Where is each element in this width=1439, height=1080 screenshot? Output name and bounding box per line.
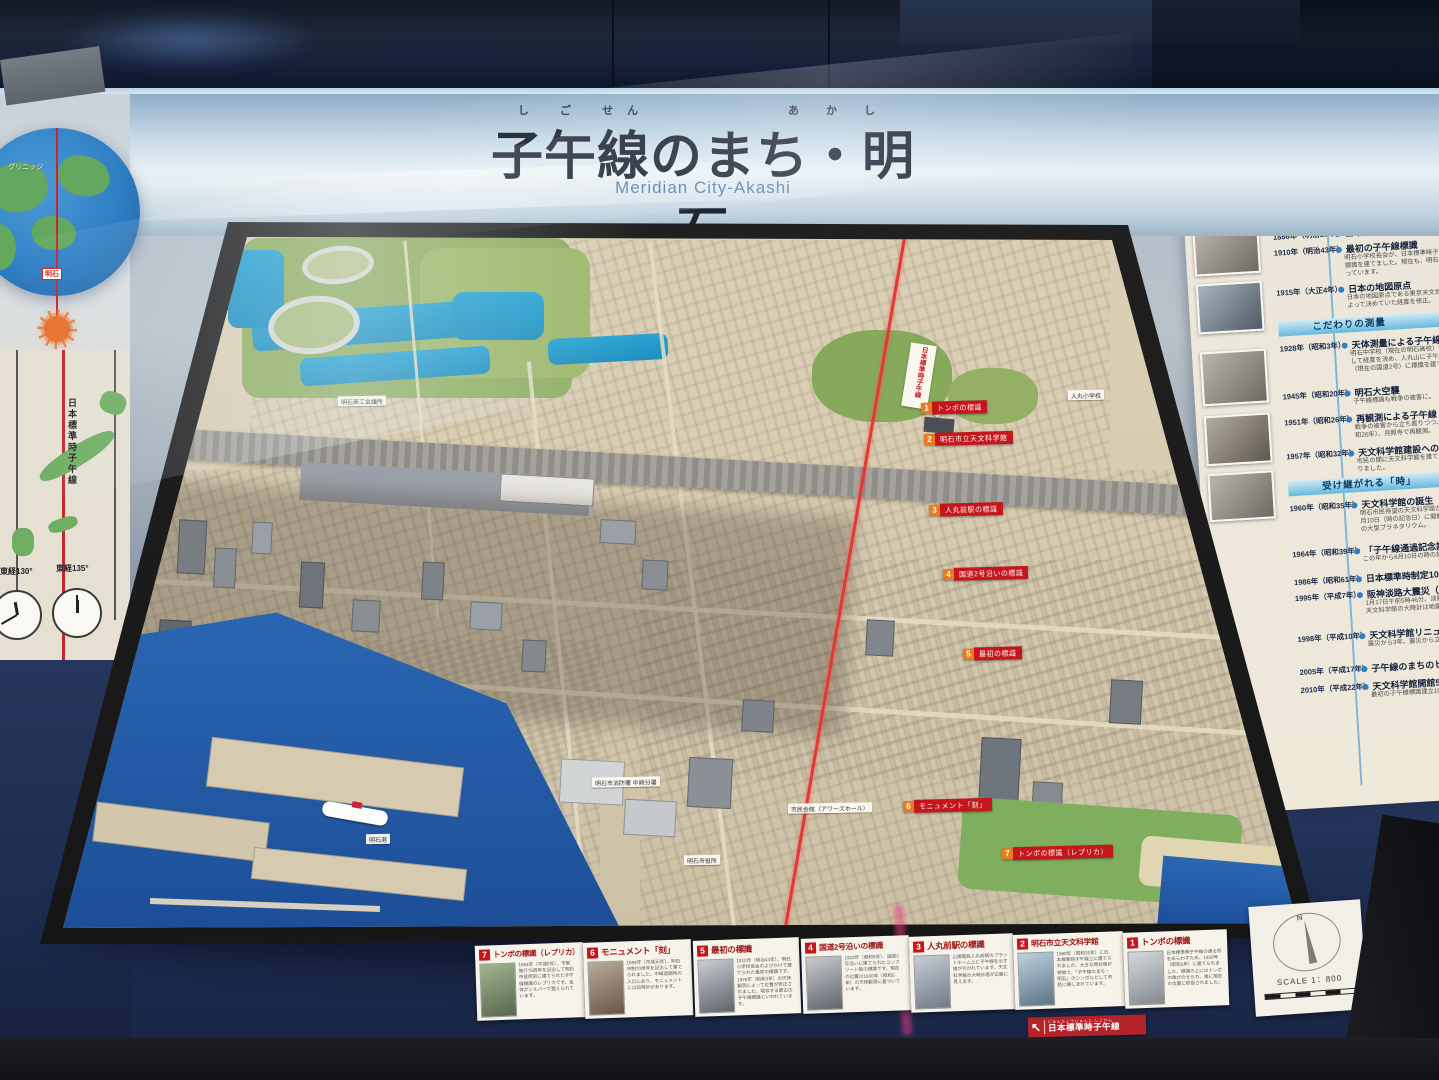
marker-label: 最初の標識: [974, 646, 1022, 660]
timeline-year: 1964年（昭和39年）: [1292, 545, 1363, 560]
longitude-line-130: [16, 350, 18, 620]
building: [865, 619, 895, 656]
museum-exhibit-photo: あかし しごせん れきし 明石と子午線の歴史 History of Akashi…: [0, 0, 1439, 1080]
banner-divider: [1044, 1020, 1045, 1034]
building: [469, 601, 502, 631]
hill-park-east: [948, 368, 1038, 424]
history-photo-thumbnail: [1207, 470, 1276, 522]
map-label: 市民会館（アワーズホール）: [788, 802, 872, 813]
japan-hokkaido: [97, 388, 129, 418]
timeline-year: 2010年（平成22年）: [1300, 681, 1371, 696]
akashi-station-building: [499, 473, 594, 506]
marker-label: 人丸前駅の標識: [940, 502, 1003, 517]
card-number: 1: [1127, 937, 1138, 948]
timeline-year: 1960年（昭和35年）: [1289, 499, 1360, 514]
ceiling-dark-right: [1152, 0, 1439, 92]
info-card-7: 7 トンボの標識（レプリカ） 1994年（平成6年）、市制施行75周年を記念して…: [475, 942, 586, 1021]
marker-label: 国道2号沿いの標識: [954, 566, 1029, 581]
globe-meridian-line: [56, 128, 58, 338]
arrow-icon: ↖: [1031, 1020, 1041, 1034]
card-photo: [913, 954, 951, 1009]
ceiling-seam: [612, 0, 614, 92]
globe-landmass: [55, 152, 113, 200]
building: [978, 737, 1021, 803]
banner-text-block: にほんひょうじゅんじ しごせん 日本標準時子午線: [1048, 1019, 1120, 1033]
card-title: 国道2号沿いの標識: [819, 940, 883, 953]
timeline-title: 日本標準時制定100周年: [1356, 566, 1439, 585]
timeline-year: 1910年（明治43年）: [1274, 244, 1345, 259]
building: [177, 519, 208, 574]
compass-icon: N: [1268, 907, 1347, 978]
scale-text: SCALE 1：800: [1253, 971, 1365, 990]
scale-card: N SCALE 1：800: [1248, 899, 1367, 1017]
building: [421, 561, 445, 600]
clock-130: [0, 590, 42, 640]
card-photo: [479, 963, 517, 1018]
building: [641, 559, 669, 590]
scale-bar: [1264, 988, 1358, 1001]
card-number: 6: [587, 947, 598, 958]
marker-number: 1: [921, 403, 932, 414]
card-number: 2: [1017, 938, 1028, 949]
card-photo: [805, 956, 843, 1011]
history-photo-thumbnail: [1204, 412, 1273, 466]
akashi-label: 明石: [42, 268, 62, 280]
compass-needle: [1300, 919, 1317, 964]
card-photo: [587, 961, 625, 1016]
japan-kyushu: [12, 528, 34, 556]
timeline-year: 1945年（昭和20年）: [1282, 387, 1353, 402]
building: [741, 699, 775, 733]
marker-number: 3: [929, 505, 940, 516]
info-card-4: 4 国道2号沿いの標識 1933年（昭和8年）、国道2号沿いに建てられたコンクリ…: [801, 935, 912, 1014]
meridian-vertical-label: 日本標準時子午線: [66, 398, 79, 518]
card-title: 人丸前駅の標識: [927, 938, 985, 952]
banner-main-text: 日本標準時子午線: [1048, 1022, 1120, 1033]
building: [599, 519, 636, 545]
meridian-marker-3: 3 人丸前駅の標識: [929, 502, 1003, 517]
globe-landmass: [0, 224, 16, 270]
info-card-1: 1 トンボの標識 日本標準時子午線の通る所をあらわすため、1930年（昭和5年）…: [1123, 929, 1230, 1009]
meridian-marker-5: 5 最初の標識: [963, 646, 1022, 661]
japan-map-panel: 日本標準時子午線 東経130° 東経135°: [0, 350, 130, 660]
building: [351, 599, 381, 632]
timeline-year: 1986年（昭和61年）: [1294, 573, 1365, 588]
building: [213, 547, 237, 588]
marker-label: 明石市立天文科学館: [935, 431, 1013, 446]
map-label: 明石市消防署 中崎分署: [592, 776, 660, 787]
info-card-3: 3 人丸前駅の標識 山陽電鉄人丸前駅のプラットホーム上に子午線を示す線が引かれて…: [909, 933, 1016, 1013]
timeline-year: 1998年（平成10年）: [1297, 630, 1368, 645]
greenwich-label: グリニッジ: [8, 162, 43, 172]
marker-label: モニュメント「刻」: [914, 798, 992, 813]
marker-number: 5: [963, 648, 974, 659]
building: [521, 639, 547, 672]
clock-135: [52, 588, 102, 638]
city-hall-building: [687, 757, 734, 809]
info-card-2: 2 明石市立天文科学館 1960年（昭和35年）に日本標準時子午線上に建てられま…: [1013, 931, 1126, 1010]
meridian-marker-2: 2 明石市立天文科学館: [924, 431, 1013, 446]
marker-number: 2: [924, 434, 935, 445]
large-roof-building: [623, 799, 677, 838]
building: [1109, 679, 1143, 725]
meridian-marker-1: 1 トンボの標識: [921, 400, 987, 415]
history-photo-thumbnail: [1200, 348, 1269, 406]
card-text: 山陽電鉄人丸前駅のプラットホーム上に子午線を示す線が引かれています。天文科学館の…: [952, 952, 1010, 1008]
card-number: 7: [479, 949, 490, 960]
card-photo: [1127, 950, 1165, 1005]
card-text: 1933年（昭和8年）、国道2号沿いに建てられたコンクリート製の標識です。現在の…: [844, 953, 902, 1009]
globe-landmass: [32, 216, 76, 250]
card-number: 3: [913, 941, 924, 952]
card-photo: [1017, 952, 1055, 1007]
card-photo: [697, 958, 735, 1013]
marker-number: 6: [903, 801, 914, 812]
building: [251, 521, 273, 554]
map-label: 明石商工会議所: [338, 396, 386, 407]
sun-icon: [44, 316, 70, 342]
card-text: 1910年（明治43年）、明石小学校長会のよびかけで建てられた最初の標識です。1…: [736, 956, 794, 1012]
card-title: 最初の標識: [711, 943, 752, 956]
card-text: 1994年（平成6年）、市制施行75周年を記念して明石市役所前に建てられた子午線…: [518, 960, 576, 1016]
marker-label: トンボの標識: [932, 400, 987, 414]
longitude-135-label: 東経135°: [56, 563, 89, 574]
timeline-year: 1951年（昭和26年）: [1284, 413, 1355, 428]
card-title: モニュメント「刻」: [601, 944, 675, 959]
marker-number: 7: [1002, 848, 1013, 859]
floor: [0, 1038, 1439, 1080]
meridian-marker-4: 4 国道2号沿いの標識: [943, 566, 1029, 581]
exhibit-subtitle-en: Meridian City-Akashi: [488, 178, 918, 198]
card-title: トンボの標識（レプリカ）: [493, 946, 580, 960]
map-label: 明石港: [366, 834, 390, 844]
card-text: 日本標準時子午線の通る所をあらわすため、1930年（昭和5年）に建てられました。…: [1166, 948, 1224, 1004]
meridian-marker-6: 6 モニュメント「刻」: [903, 798, 992, 813]
timeline-year: 1957年（昭和32年）: [1286, 447, 1357, 462]
marker-label: トンボの標識（レプリカ）: [1013, 845, 1113, 861]
timeline-title: 子午線のまちのヒーロー: [1361, 656, 1439, 676]
card-title: 明石市立天文科学館: [1031, 936, 1099, 949]
map-label: 明石市役所: [684, 855, 720, 866]
longitude-line-140: [114, 350, 116, 620]
card-title: トンボの標識: [1141, 934, 1191, 948]
meridian-banner-text: 日本標準時子午線: [911, 346, 929, 399]
exhibit-title-block: し ご せん あ か し 子午線のまち・明石 Meridian City-Aka…: [488, 100, 918, 210]
card-number: 5: [697, 945, 708, 956]
longitude-130-label: 東経130°: [0, 566, 33, 577]
building: [299, 561, 325, 608]
info-card-6: 6 モニュメント「刻」 1989年（平成元年）、明石市制70周年を記念して建てら…: [583, 939, 694, 1019]
info-card-5: 5 最初の標識 1910年（明治43年）、明石小学校長会のよびかけで建てられた最…: [693, 937, 802, 1017]
card-text: 1960年（昭和35年）に日本標準時子午線上に建てられました。大きな時計塔が特徴…: [1056, 949, 1114, 1005]
timeline-band-2: こだわりの測量: [1278, 307, 1439, 336]
timeline-year: 2005年（平成17年）: [1299, 663, 1370, 678]
map-label: 人丸小学校: [1068, 390, 1104, 401]
history-photo-thumbnail: [1196, 281, 1265, 335]
marker-number: 4: [943, 569, 954, 580]
ceiling-seam: [828, 0, 830, 92]
park-pond: [452, 292, 544, 340]
base-meridian-banner: ↖ にほんひょうじゅんじ しごせん 日本標準時子午線: [1028, 1014, 1146, 1037]
card-text: 1989年（平成元年）、明石市制70周年を記念して建てられました。中崎遊園地の入…: [626, 958, 684, 1014]
card-number: 4: [805, 942, 816, 953]
